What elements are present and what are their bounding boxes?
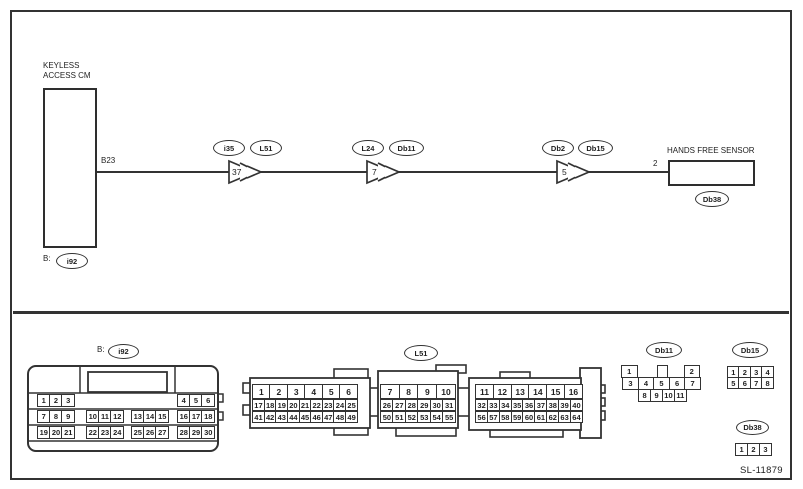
pin-cell: 27 xyxy=(155,426,169,439)
i92-pin-group: 101112 xyxy=(86,410,124,423)
l51-pin-row: 323334353637383940 xyxy=(475,399,583,411)
i92-pin-group: 252627 xyxy=(131,426,169,439)
pin-cell: 64 xyxy=(570,411,583,423)
l51-pin-row: 262728293031 xyxy=(380,399,456,411)
junction-pin-number: 7 xyxy=(372,167,377,177)
connector-tag-db15: Db15 xyxy=(732,342,768,358)
connector-tag-l51-top: L51 xyxy=(250,140,282,156)
pin-cell: 18 xyxy=(201,410,215,423)
pin-cell: 12 xyxy=(493,384,512,399)
shell-clip xyxy=(580,368,601,438)
db38-pin-row: 123 xyxy=(735,443,772,456)
pin-cell: 49 xyxy=(345,411,358,423)
l51-pin-row: 505152535455 xyxy=(380,411,456,423)
pin-cell: 11 xyxy=(475,384,494,399)
connector-tag-db15-top: Db15 xyxy=(578,140,613,156)
pin-cell: 15 xyxy=(155,410,169,423)
wire-pin-label: B23 xyxy=(101,156,115,165)
pin-cell: 3 xyxy=(622,377,639,390)
pin-cell: 24 xyxy=(110,426,124,439)
connector-tag-db38: Db38 xyxy=(736,420,769,435)
pin-cell: 8 xyxy=(761,377,774,389)
l51-pin-row: 414243444546474849 xyxy=(252,411,358,423)
i92-pin-group: 192021 xyxy=(37,426,75,439)
keyless-module-label: KEYLESS ACCESS CM xyxy=(43,61,91,81)
pin-cell: 9 xyxy=(61,410,75,423)
connector-tag-db11: Db11 xyxy=(646,342,682,358)
pin-cell: 6 xyxy=(339,384,358,399)
db11-pin-row: 891011 xyxy=(638,389,687,402)
pin-cell: 40 xyxy=(570,399,583,411)
arrow-chevron xyxy=(247,166,261,178)
section-divider xyxy=(13,311,789,314)
pin-cell: 3 xyxy=(287,384,306,399)
keyless-module-box xyxy=(43,88,97,248)
connector-tag-i92-top: i92 xyxy=(56,253,88,269)
pin-cell: 8 xyxy=(399,384,419,399)
pin-cell: 7 xyxy=(380,384,400,399)
junction-arrow-1: 37 xyxy=(228,157,264,187)
i92-pin-group: 282930 xyxy=(177,426,215,439)
junction-arrow-3: 5 xyxy=(556,157,592,187)
pin-cell: 5 xyxy=(322,384,341,399)
i92-pin-group: 456 xyxy=(177,394,215,407)
sensor-box xyxy=(668,160,755,186)
connector-tag-l51: L51 xyxy=(404,345,438,361)
l51-pin-row: 565758596061626364 xyxy=(475,411,583,423)
arrow-chevron xyxy=(575,166,589,178)
i92-pin-group: 161718 xyxy=(177,410,215,423)
i92-pin-group: 789 xyxy=(37,410,75,423)
arrow-chevron xyxy=(385,166,399,178)
wiring-diagram-page: KEYLESS ACCESS CM B23 i35 L51 37 L24 Db1… xyxy=(0,0,803,489)
connector-tag-i35: i35 xyxy=(213,140,245,156)
l51-pin-row: 111213141516 xyxy=(475,384,583,399)
pin-cell: 25 xyxy=(345,399,358,411)
l51-pin-row: 171819202122232425 xyxy=(252,399,358,411)
db15-pin-row: 5678 xyxy=(727,377,774,389)
connector-tag-db38-top: Db38 xyxy=(695,191,729,207)
junction-pin-number: 37 xyxy=(232,167,242,177)
keyless-module-label-line2: ACCESS CM xyxy=(43,71,91,81)
pin-cell: 15 xyxy=(546,384,565,399)
pin-cell: 3 xyxy=(759,443,772,456)
sensor-pin-label: 2 xyxy=(653,159,657,168)
pin-cell: 4 xyxy=(304,384,323,399)
junction-arrow-2: 7 xyxy=(366,157,402,187)
pin-cell: 10 xyxy=(436,384,456,399)
figure-code: SL-11879 xyxy=(740,465,783,476)
pin-cell: 6 xyxy=(201,394,215,407)
i92-pin-group: 131415 xyxy=(131,410,169,423)
l51-pin-row: 123456 xyxy=(252,384,358,399)
pin-cell: 11 xyxy=(674,389,687,402)
pin-cell: 9 xyxy=(417,384,437,399)
pin-cell: 2 xyxy=(269,384,288,399)
pin-cell: 12 xyxy=(110,410,124,423)
pin-cell: 1 xyxy=(252,384,271,399)
pin-cell: 55 xyxy=(442,411,456,423)
connector-tag-db11-top: Db11 xyxy=(389,140,424,156)
connector-tag-i92: i92 xyxy=(108,344,139,359)
junction-pin-number: 5 xyxy=(562,167,567,177)
sensor-label: HANDS FREE SENSOR xyxy=(667,146,755,156)
pin-cell: 13 xyxy=(511,384,530,399)
shell-tab-window xyxy=(88,372,167,392)
i92-pin-group: 123 xyxy=(37,394,75,407)
module-connector-prefix: B: xyxy=(43,254,51,263)
l51-pin-row: 78910 xyxy=(380,384,456,399)
pin-cell: 16 xyxy=(564,384,583,399)
connector-tag-l24: L24 xyxy=(352,140,384,156)
connector-tag-db2: Db2 xyxy=(542,140,574,156)
keyless-module-label-line1: KEYLESS xyxy=(43,61,91,71)
i92-pin-group: 222324 xyxy=(86,426,124,439)
pin-cell: 21 xyxy=(61,426,75,439)
pin-cell: 14 xyxy=(528,384,547,399)
i92-prefix: B: xyxy=(97,345,105,354)
pin-cell: 3 xyxy=(61,394,75,407)
pin-cell: 31 xyxy=(442,399,456,411)
pin-cell: 30 xyxy=(201,426,215,439)
